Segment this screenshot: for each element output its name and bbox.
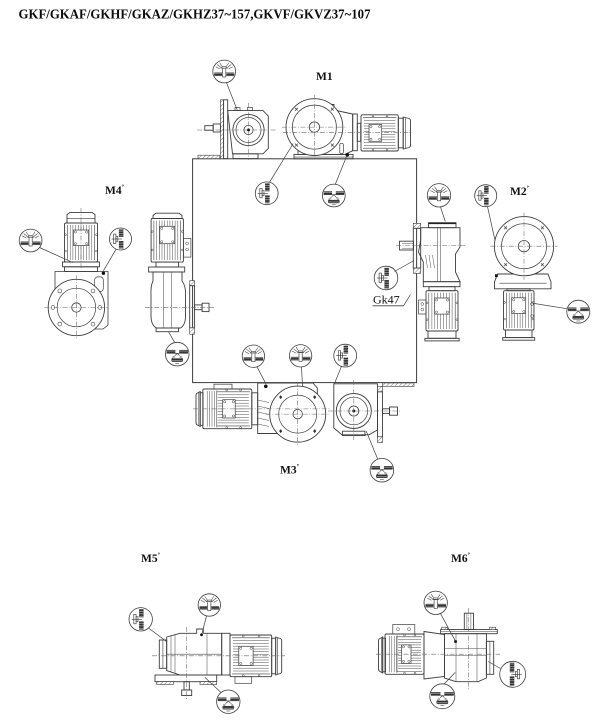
svg-text:M3’: M3’ [280,462,299,477]
svg-text:M6’: M6’ [451,551,470,566]
svg-text:M4’: M4’ [105,183,124,198]
svg-text:M1: M1 [316,71,333,83]
svg-text:M2’: M2’ [510,184,529,199]
svg-text:M5’: M5’ [141,551,160,566]
svg-text:GKF/GKAF/GKHF/GKAZ/GKHZ37~157,: GKF/GKAF/GKHF/GKAZ/GKHZ37~157,GKVF/GKVZ3… [19,7,371,22]
svg-text:Gk47: Gk47 [373,293,400,307]
